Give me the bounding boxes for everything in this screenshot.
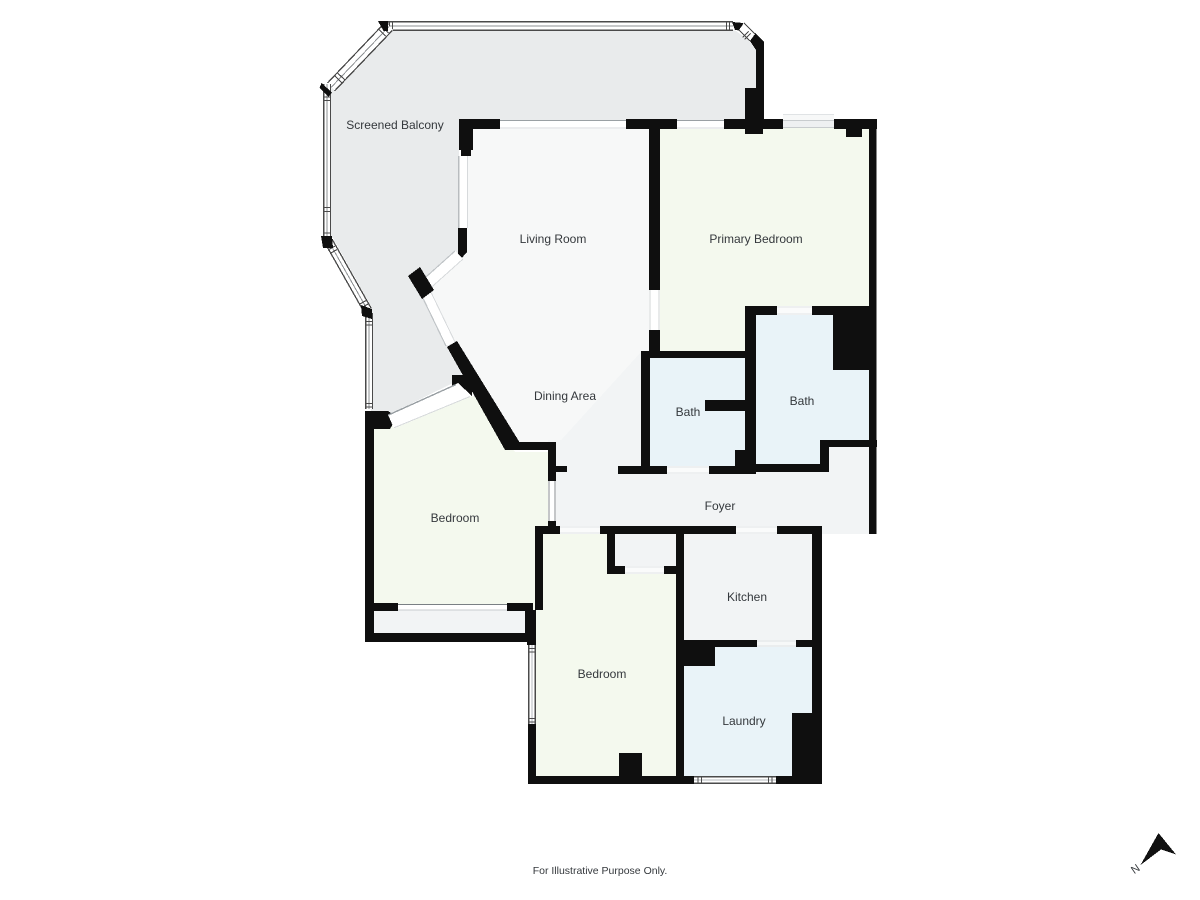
- svg-text:Bath: Bath: [676, 405, 701, 419]
- svg-text:Laundry: Laundry: [722, 714, 765, 728]
- svg-text:Bedroom: Bedroom: [578, 667, 627, 681]
- svg-text:Kitchen: Kitchen: [727, 590, 767, 604]
- svg-text:Dining Area: Dining Area: [534, 389, 596, 403]
- svg-text:Bedroom: Bedroom: [431, 511, 480, 525]
- svg-text:Screened Balcony: Screened Balcony: [346, 118, 443, 132]
- svg-text:Foyer: Foyer: [705, 499, 736, 513]
- svg-text:Primary Bedroom: Primary Bedroom: [709, 232, 802, 246]
- svg-text:For Illustrative Purpose Only.: For Illustrative Purpose Only.: [533, 865, 668, 877]
- svg-text:Living Room: Living Room: [520, 232, 587, 246]
- svg-text:Bath: Bath: [790, 394, 815, 408]
